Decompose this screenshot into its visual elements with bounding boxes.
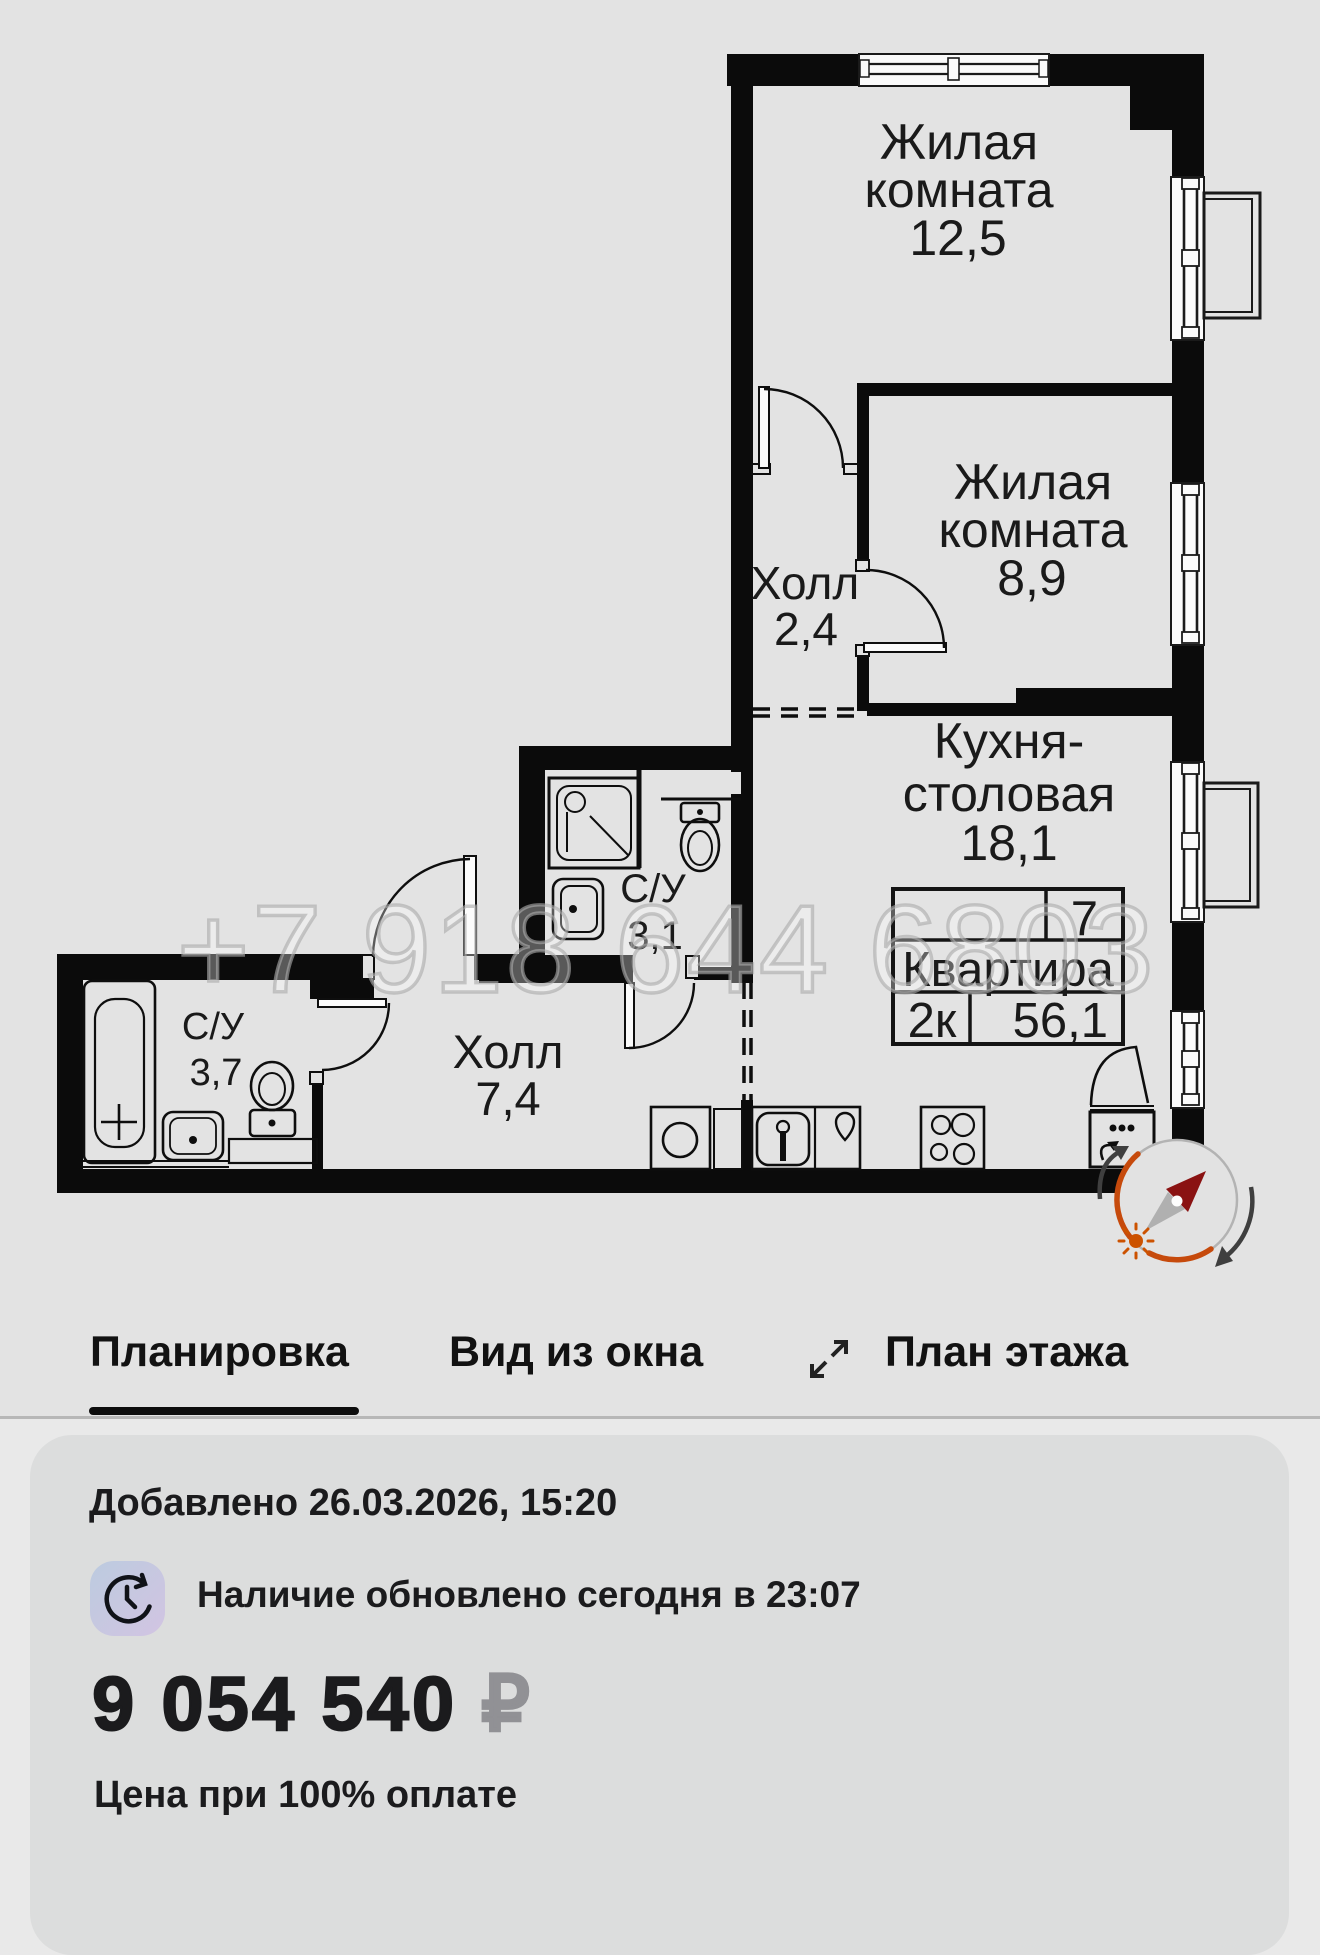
svg-text:2,4: 2,4	[774, 603, 838, 655]
svg-text:8,9: 8,9	[997, 550, 1067, 606]
svg-text:столовая: столовая	[903, 766, 1115, 822]
svg-text:18,1: 18,1	[960, 815, 1057, 871]
svg-text:Холл: Холл	[751, 557, 859, 609]
svg-text:7,4: 7,4	[475, 1072, 540, 1125]
svg-text:3,7: 3,7	[190, 1052, 243, 1094]
svg-text:12,5: 12,5	[909, 210, 1006, 266]
svg-text:Кухня-: Кухня-	[934, 713, 1084, 769]
svg-text:Холл: Холл	[453, 1025, 564, 1078]
svg-text:+7 918 644 6803: +7 918 644 6803	[177, 881, 1156, 1019]
